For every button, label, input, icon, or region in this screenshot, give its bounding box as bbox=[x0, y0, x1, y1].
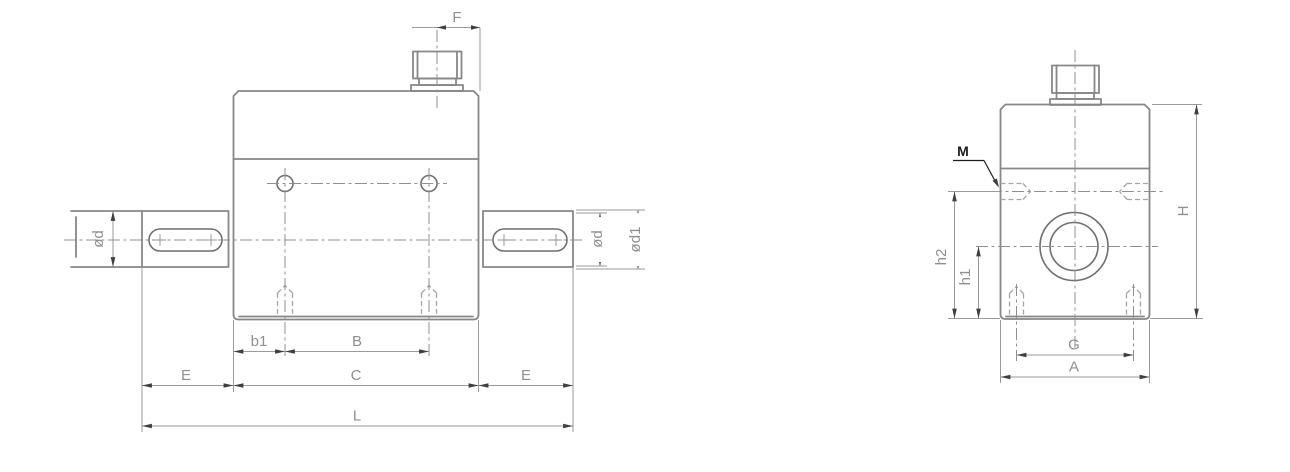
shaft-left-keyed-section bbox=[142, 211, 229, 267]
shaft-right-keyed-section bbox=[483, 211, 573, 267]
label-h2: h2 bbox=[933, 249, 950, 266]
dimension-b1-B: b1 B bbox=[234, 333, 430, 352]
label-G: G bbox=[1068, 337, 1080, 354]
side-view: M h2 h1 H G A bbox=[933, 50, 1203, 383]
label-d-left: ød bbox=[90, 230, 107, 248]
front-view: F ød ød ød1 b1 B bbox=[64, 9, 647, 432]
dimension-G-A: G A bbox=[1001, 320, 1150, 383]
label-M: M bbox=[957, 143, 969, 159]
dimension-L: L bbox=[142, 408, 573, 427]
dimension-h2-h1: h2 h1 bbox=[933, 192, 1000, 319]
label-H: H bbox=[1175, 206, 1192, 217]
drawing-canvas: F ød ød ød1 b1 B bbox=[0, 0, 1290, 472]
label-E-left: E bbox=[181, 367, 191, 384]
dimension-d-left: ød bbox=[90, 211, 113, 267]
label-b1: b1 bbox=[251, 333, 268, 350]
label-d-right: ød bbox=[589, 230, 606, 248]
label-C: C bbox=[351, 367, 362, 384]
callout-M: M bbox=[953, 143, 999, 188]
label-F: F bbox=[452, 9, 461, 26]
dimension-d-right: ød ød1 bbox=[576, 210, 647, 269]
label-L: L bbox=[353, 408, 361, 425]
label-E-right: E bbox=[521, 367, 531, 384]
label-h1: h1 bbox=[957, 269, 974, 286]
label-A: A bbox=[1069, 359, 1079, 376]
dimension-H: H bbox=[1150, 105, 1203, 319]
technical-drawing: F ød ød ød1 b1 B bbox=[0, 0, 1290, 472]
sensor-body-front bbox=[234, 91, 479, 320]
label-d1: ød1 bbox=[627, 227, 644, 253]
label-B: B bbox=[352, 333, 362, 350]
center-lines-side bbox=[976, 50, 1163, 361]
bottom-thread-holes-front bbox=[278, 286, 437, 318]
